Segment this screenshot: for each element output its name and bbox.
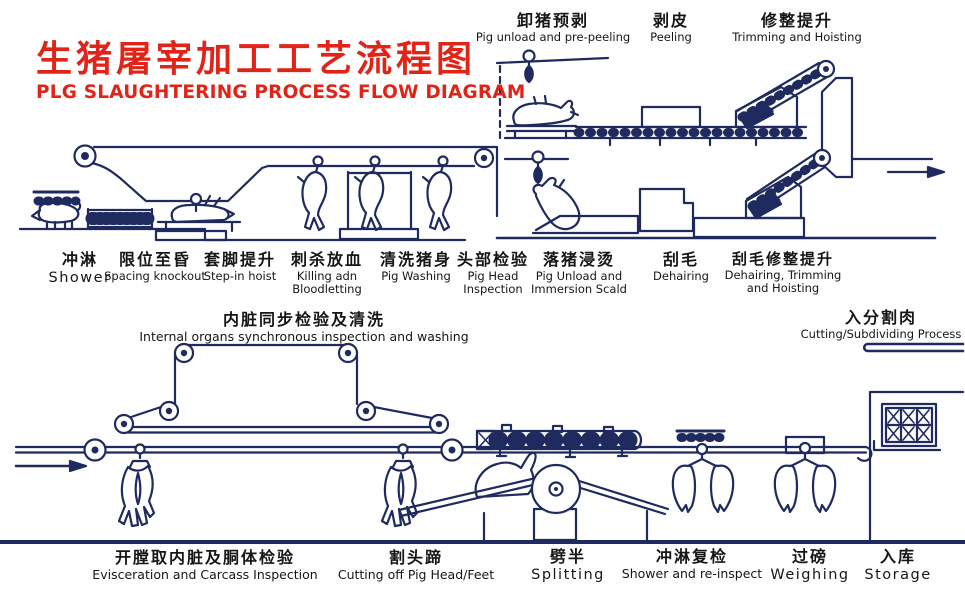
page-title-en: PLG SLAUGHTERING PROCESS FLOW DIAGRAM [36, 82, 525, 103]
storage-room-art [864, 344, 963, 541]
station-label-dehairing-trimming-hoisting: 刮毛修整提升 Dehairing, Trimming and Hoisting [719, 251, 847, 295]
section-label-cutting-subdividing: 入分割肉 Cutting/Subdividing Process [801, 309, 962, 341]
station-label-step-in-hoist: 套脚提升 Step-in hoist [204, 251, 277, 283]
weighing-scale-art [775, 437, 835, 512]
station-label-weighing: 过磅 Weighing [770, 548, 849, 583]
station-label-shower: 冲淋 Shower [48, 251, 111, 286]
station-label-spacing-knockout: 限位至昏 Spacing knockout [104, 251, 206, 283]
dehairing-machine-art [497, 189, 935, 238]
splitting-saw-art [399, 453, 668, 540]
station-label-immersion-scald: 落猪浸烫 Pig Unload and Immersion Scald [527, 251, 631, 296]
restrainer-art [88, 209, 152, 228]
station-label-shower-reinspect: 冲淋复检 Shower and re-inspect [622, 548, 762, 581]
station-label-storage: 入库 Storage [864, 548, 931, 583]
line2-overhead-rail [16, 440, 871, 472]
section-label-organ-inspection: 内脏同步检验及清洗 Internal organs synchronous in… [139, 311, 468, 344]
station-label-cutting-head-feet: 割头蹄 Cutting off Pig Head/Feet [338, 549, 494, 582]
station-label-dehairing: 刮毛 Dehairing [653, 251, 709, 283]
page-title-zh: 生猪屠宰加工工艺流程图 [36, 40, 525, 80]
hoist-lower-art [746, 150, 830, 218]
hanging-pigs-art [298, 157, 451, 231]
page-title: 生猪屠宰加工工艺流程图 PLG SLAUGHTERING PROCESS FLO… [36, 40, 525, 103]
scalding-tank-art [533, 178, 638, 233]
flow-diagram-page: 生猪屠宰加工工艺流程图 PLG SLAUGHTERING PROCESS FLO… [0, 0, 965, 601]
station-label-peeling: 剥皮 Peeling [650, 12, 692, 44]
hoist-upper-art [736, 61, 834, 128]
evisceration-carcasses-art [119, 445, 417, 527]
station-label-evisceration: 开膛取内脏及胴体检验 Evisceration and Carcass Insp… [92, 549, 317, 582]
station-label-pig-washing: 清洗猪身 Pig Washing [380, 251, 452, 283]
station-label-trimming-hoisting: 修整提升 Trimming and Hoisting [732, 12, 862, 44]
line1-overhead-rail [75, 146, 498, 217]
station-label-splitting: 劈半 Splitting [531, 548, 605, 583]
inspection-loop-art [115, 344, 448, 433]
reinspect-shower-art [673, 431, 733, 512]
station-label-head-inspection: 头部检验 Pig Head Inspection [456, 251, 530, 296]
transfer-tower-art [822, 78, 944, 177]
station-label-killing-bloodletting: 刺杀放血 Killing adn Bloodletting [287, 251, 367, 296]
peeling-machine-art [642, 107, 700, 127]
station-label-unload-prepeel: 卸猪预剥 Pig unload and pre-peeling [476, 12, 630, 44]
